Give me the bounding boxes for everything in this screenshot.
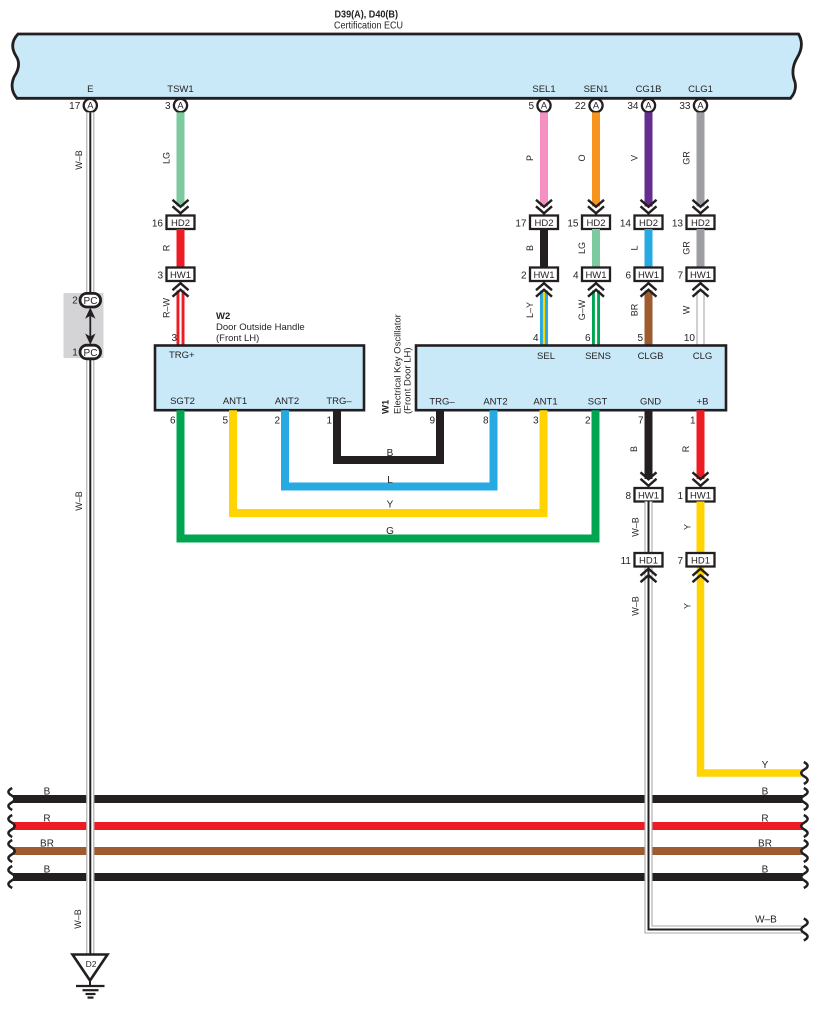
svg-text:HD1: HD1	[691, 556, 710, 567]
svg-text:HD2: HD2	[586, 218, 605, 229]
svg-text:SGT: SGT	[588, 396, 608, 407]
svg-text:SEL1: SEL1	[532, 84, 555, 95]
svg-text:ANT1: ANT1	[223, 396, 247, 407]
svg-text:CG1B: CG1B	[636, 84, 662, 95]
svg-text:A: A	[541, 101, 548, 111]
svg-text:(Front Door LH): (Front Door LH)	[403, 347, 414, 414]
svg-text:HW1: HW1	[170, 270, 191, 281]
svg-text:B: B	[44, 865, 51, 876]
svg-text:3: 3	[157, 270, 163, 281]
svg-text:CLGB: CLGB	[638, 351, 664, 362]
svg-text:W–B: W–B	[631, 596, 641, 616]
svg-text:+B: +B	[697, 396, 709, 407]
svg-text:HW1: HW1	[638, 270, 659, 281]
svg-text:HW1: HW1	[533, 270, 554, 281]
svg-text:W2: W2	[216, 311, 230, 322]
svg-text:R–W: R–W	[162, 297, 172, 318]
svg-text:L: L	[630, 245, 640, 250]
svg-text:SENS: SENS	[585, 351, 611, 362]
svg-text:1: 1	[326, 416, 332, 427]
svg-text:13: 13	[672, 218, 684, 229]
svg-text:L–Y: L–Y	[525, 302, 535, 318]
svg-text:7: 7	[677, 556, 683, 567]
svg-text:HW1: HW1	[690, 270, 711, 281]
svg-text:15: 15	[567, 218, 579, 229]
svg-text:16: 16	[152, 218, 164, 229]
svg-text:W–B: W–B	[755, 915, 777, 926]
svg-text:17: 17	[515, 218, 527, 229]
svg-text:9: 9	[429, 416, 435, 427]
svg-text:PC: PC	[84, 348, 98, 359]
svg-text:14: 14	[620, 218, 632, 229]
svg-text:6: 6	[170, 416, 176, 427]
svg-text:R: R	[162, 244, 172, 251]
svg-text:BR: BR	[758, 839, 772, 850]
svg-text:1: 1	[690, 416, 696, 427]
svg-text:5: 5	[222, 416, 228, 427]
svg-text:7: 7	[677, 270, 683, 281]
svg-text:HD2: HD2	[639, 218, 658, 229]
svg-text:5: 5	[528, 101, 534, 112]
svg-text:4: 4	[573, 270, 579, 281]
svg-text:2: 2	[521, 270, 527, 281]
svg-text:B: B	[387, 448, 394, 459]
svg-text:B: B	[629, 446, 639, 452]
svg-text:ANT1: ANT1	[533, 396, 557, 407]
svg-text:Y: Y	[762, 760, 769, 771]
svg-text:G–W: G–W	[577, 299, 587, 320]
svg-text:11: 11	[621, 556, 632, 567]
svg-text:33: 33	[679, 101, 691, 112]
svg-text:B: B	[762, 865, 769, 876]
svg-text:R: R	[43, 814, 50, 825]
svg-text:34: 34	[627, 101, 639, 112]
svg-text:GND: GND	[640, 396, 661, 407]
svg-text:G: G	[386, 526, 394, 537]
svg-text:TSW1: TSW1	[167, 84, 193, 95]
svg-text:SEL: SEL	[537, 351, 555, 362]
svg-text:LG: LG	[577, 242, 587, 254]
svg-text:PC: PC	[84, 296, 98, 307]
svg-text:HD2: HD2	[171, 218, 190, 229]
svg-text:A: A	[593, 101, 600, 111]
svg-text:HD1: HD1	[639, 556, 658, 567]
svg-text:5: 5	[637, 333, 643, 344]
svg-text:R: R	[761, 814, 768, 825]
svg-text:6: 6	[625, 270, 631, 281]
svg-text:6: 6	[585, 333, 591, 344]
svg-text:BR: BR	[630, 303, 640, 316]
svg-text:L: L	[387, 475, 393, 486]
svg-text:D2: D2	[86, 959, 97, 969]
svg-text:22: 22	[575, 101, 587, 112]
svg-text:Y: Y	[683, 524, 693, 530]
svg-text:(Front LH): (Front LH)	[216, 333, 259, 344]
svg-text:8: 8	[625, 491, 631, 502]
svg-text:1: 1	[72, 347, 78, 358]
svg-text:3: 3	[165, 101, 171, 112]
svg-text:O: O	[577, 154, 587, 161]
svg-text:W: W	[682, 305, 692, 314]
svg-text:ANT2: ANT2	[483, 396, 507, 407]
svg-text:TRG–: TRG–	[326, 396, 352, 407]
svg-text:3: 3	[533, 416, 539, 427]
svg-text:BR: BR	[40, 839, 54, 850]
svg-text:7: 7	[638, 416, 644, 427]
svg-text:E: E	[87, 84, 93, 95]
svg-text:A: A	[645, 101, 652, 111]
svg-text:CLG1: CLG1	[688, 84, 713, 95]
svg-text:GR: GR	[682, 241, 692, 255]
svg-text:W1: W1	[381, 399, 392, 414]
svg-text:TRG–: TRG–	[429, 396, 455, 407]
svg-text:Y: Y	[683, 603, 693, 609]
svg-text:B: B	[525, 245, 535, 251]
svg-text:CLG: CLG	[693, 351, 713, 362]
svg-text:HD2: HD2	[691, 218, 710, 229]
svg-text:TRG+: TRG+	[169, 350, 195, 361]
svg-text:W–B: W–B	[73, 909, 83, 929]
svg-text:W–B: W–B	[631, 517, 641, 537]
svg-text:4: 4	[533, 333, 539, 344]
svg-text:A: A	[87, 101, 94, 111]
svg-text:W–B: W–B	[74, 491, 84, 511]
svg-text:B: B	[762, 787, 769, 798]
svg-text:Door Outside Handle: Door Outside Handle	[216, 322, 305, 333]
svg-text:A: A	[177, 101, 184, 111]
svg-text:HW1: HW1	[690, 491, 711, 502]
svg-text:ANT2: ANT2	[275, 396, 299, 407]
svg-text:1: 1	[677, 491, 683, 502]
svg-text:GR: GR	[682, 151, 692, 165]
svg-text:Certification ECU: Certification ECU	[334, 20, 403, 32]
svg-text:W–B: W–B	[74, 150, 84, 170]
svg-text:SEN1: SEN1	[584, 84, 609, 95]
svg-text:HW1: HW1	[585, 270, 606, 281]
svg-text:10: 10	[684, 333, 696, 344]
svg-text:HW1: HW1	[638, 491, 659, 502]
svg-text:B: B	[44, 787, 51, 798]
svg-text:P: P	[525, 155, 535, 161]
svg-text:SGT2: SGT2	[170, 396, 195, 407]
svg-text:V: V	[630, 155, 640, 161]
svg-text:2: 2	[585, 416, 591, 427]
svg-text:2: 2	[72, 296, 78, 307]
svg-text:8: 8	[483, 416, 489, 427]
svg-text:LG: LG	[162, 152, 172, 164]
svg-text:17: 17	[69, 101, 81, 112]
svg-text:Y: Y	[387, 500, 394, 511]
svg-text:2: 2	[274, 416, 280, 427]
svg-text:HD2: HD2	[534, 218, 553, 229]
svg-text:A: A	[697, 101, 704, 111]
svg-text:3: 3	[171, 333, 177, 344]
svg-text:R: R	[681, 445, 691, 452]
